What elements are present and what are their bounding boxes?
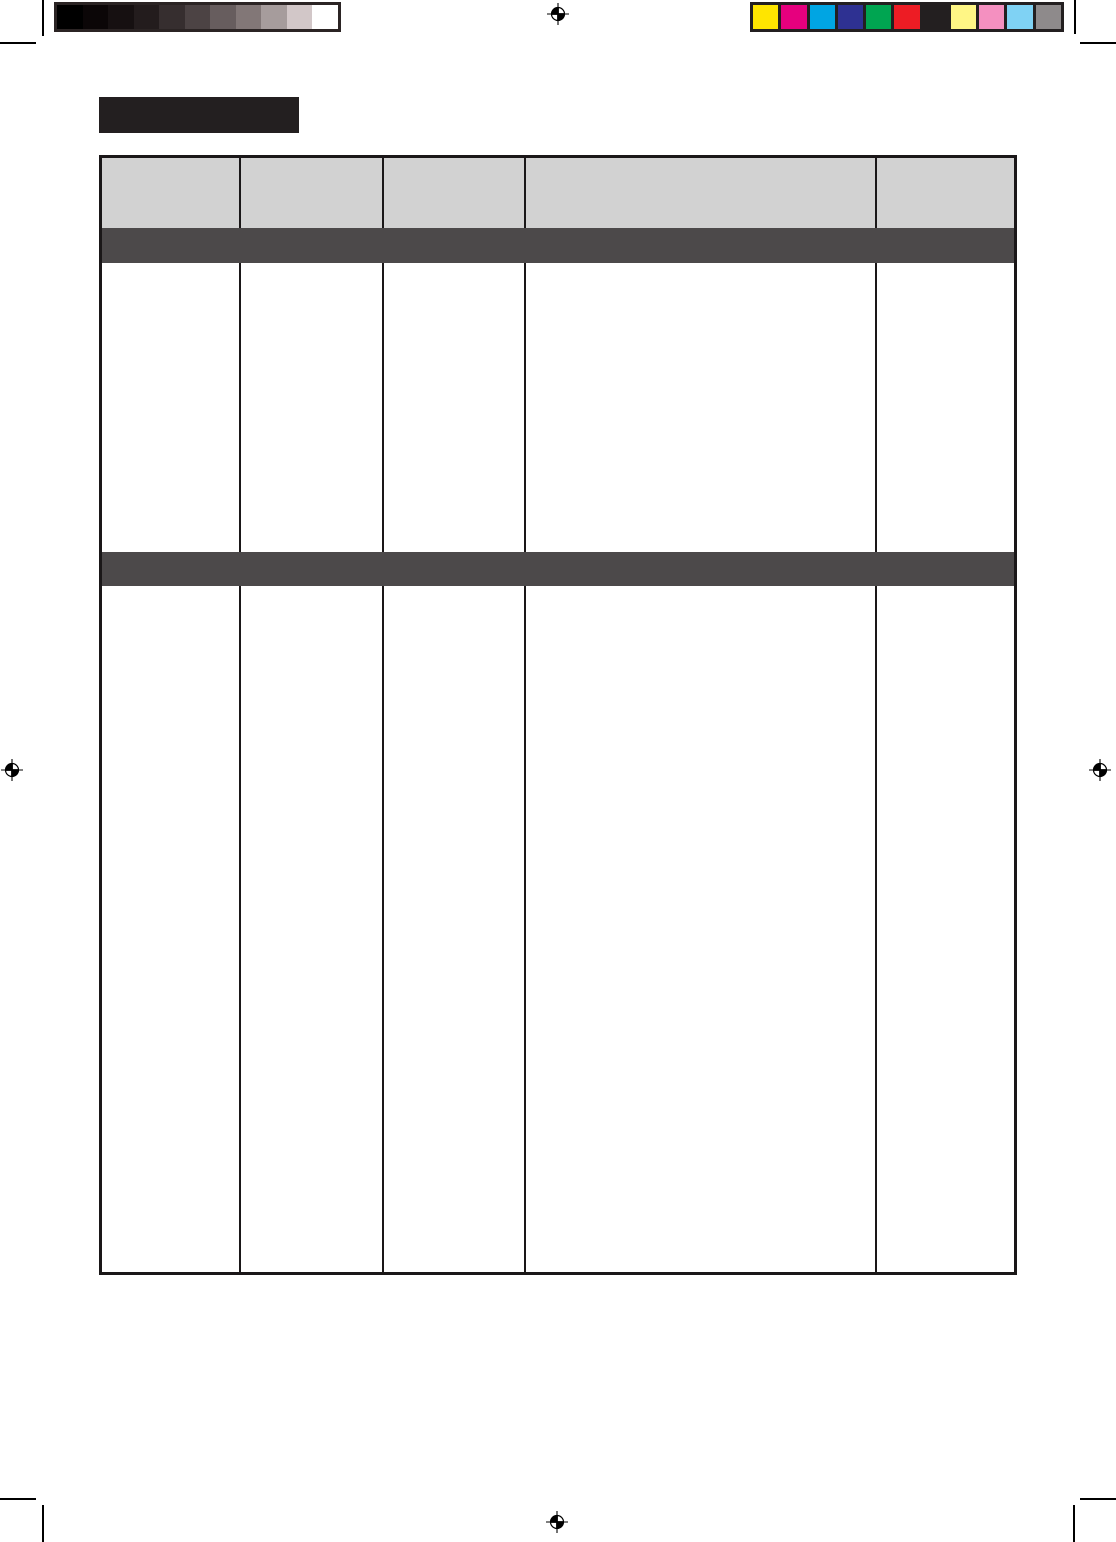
calibration-swatch — [894, 5, 919, 29]
calibration-swatch — [951, 5, 976, 29]
calibration-swatch — [923, 5, 948, 29]
grayscale-calibration-bar — [54, 2, 341, 32]
table-cell — [526, 263, 877, 552]
table-cell — [102, 586, 241, 1272]
calibration-swatch — [236, 5, 262, 29]
registration-mark-icon — [546, 2, 570, 26]
calibration-swatch — [159, 5, 185, 29]
printed-manual-page: { "page": { "background": "#ffffff", "cr… — [0, 0, 1116, 1542]
spec-table — [99, 155, 1017, 1275]
table-cell — [877, 263, 1014, 552]
crop-mark-bottom-left-vertical — [42, 1505, 44, 1542]
table-body-band — [102, 586, 1014, 1272]
calibration-swatch — [810, 5, 835, 29]
calibration-swatch — [866, 5, 891, 29]
crop-mark-bottom-right-vertical — [1073, 1505, 1075, 1542]
table-cell — [102, 263, 241, 552]
crop-mark-top-right-vertical — [1074, 0, 1076, 34]
calibration-swatch — [781, 5, 806, 29]
crop-mark-bottom-left-horizontal — [0, 1498, 36, 1500]
calibration-swatch — [979, 5, 1004, 29]
calibration-swatch — [753, 5, 778, 29]
crop-mark-top-left-vertical — [42, 0, 44, 36]
table-cell — [384, 263, 526, 552]
calibration-swatch — [838, 5, 863, 29]
table-body-band — [102, 263, 1014, 552]
calibration-swatch — [261, 5, 287, 29]
registration-mark-icon — [1088, 758, 1112, 782]
calibration-swatch — [134, 5, 160, 29]
table-section-bar — [102, 228, 1014, 263]
crop-mark-top-left-horizontal — [0, 42, 36, 44]
section-title-block — [99, 97, 299, 133]
calibration-swatch — [312, 5, 338, 29]
table-header-row — [102, 158, 1014, 228]
crop-mark-bottom-right-horizontal — [1080, 1498, 1116, 1500]
calibration-swatch — [1007, 5, 1032, 29]
table-header-cell — [877, 158, 1014, 228]
table-cell — [384, 586, 526, 1272]
table-header-cell — [102, 158, 241, 228]
table-cell — [877, 586, 1014, 1272]
table-header-cell — [241, 158, 384, 228]
registration-mark-icon — [0, 758, 24, 782]
table-header-cell — [384, 158, 526, 228]
crop-mark-top-right-horizontal — [1080, 42, 1116, 44]
calibration-swatch — [57, 5, 83, 29]
table-cell — [241, 263, 384, 552]
calibration-swatch — [185, 5, 211, 29]
calibration-swatch — [83, 5, 109, 29]
calibration-swatch — [287, 5, 313, 29]
table-header-cell — [526, 158, 877, 228]
table-section-bar — [102, 552, 1014, 586]
registration-mark-icon — [545, 1510, 569, 1534]
calibration-swatch — [1036, 5, 1061, 29]
table-cell — [526, 586, 877, 1272]
table-cell — [241, 586, 384, 1272]
calibration-swatch — [210, 5, 236, 29]
color-calibration-bar — [750, 2, 1064, 32]
calibration-swatch — [108, 5, 134, 29]
